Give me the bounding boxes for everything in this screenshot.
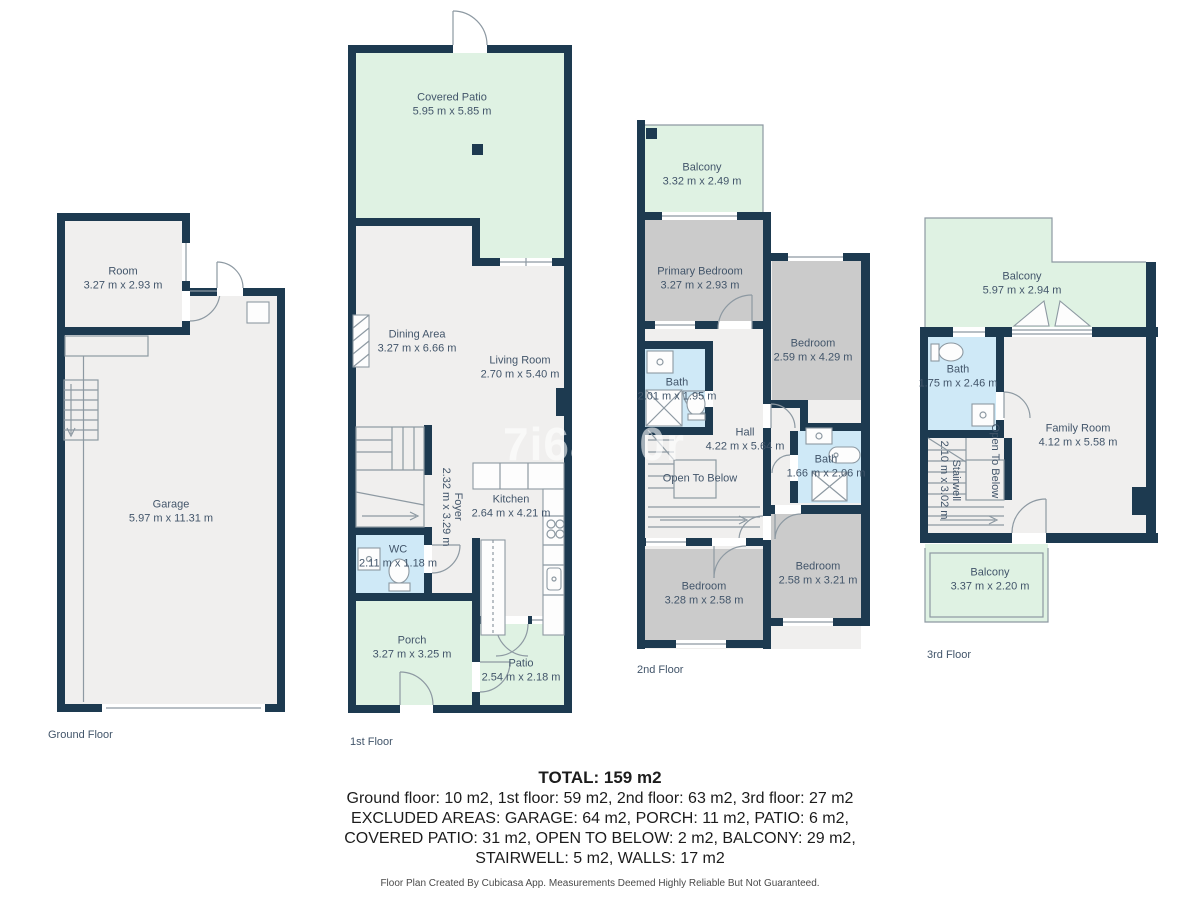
- room-dims: 3.27 m x 2.93 m: [657, 279, 743, 293]
- room-name: Covered Patio: [413, 92, 492, 106]
- room-label-foyer: Foyer 2.32 m x 3.29 m: [440, 468, 464, 547]
- room-name: Stairwell: [950, 441, 962, 520]
- room-label-hall: Hall 4.22 m x 5.64 m: [706, 427, 785, 454]
- room-dims: 5.97 m x 2.94 m: [983, 284, 1062, 298]
- water-heater: [247, 302, 269, 323]
- summary-excluded-3: STAIRWELL: 5 m2, WALLS: 17 m2: [0, 849, 1200, 869]
- room-name: Bedroom: [779, 561, 858, 575]
- room-name: Kitchen: [472, 494, 551, 508]
- room-name: Balcony: [983, 271, 1062, 285]
- room-label-wc: WC 2.11 m x 1.18 m: [359, 544, 437, 571]
- room-name: Bedroom: [665, 581, 744, 595]
- room-dims: 3.32 m x 2.49 m: [663, 175, 742, 189]
- open-to-below-label-2f: Open To Below: [663, 472, 737, 486]
- room-name: Room: [84, 266, 163, 280]
- summary-excluded-2: COVERED PATIO: 31 m2, OPEN TO BELOW: 2 m…: [0, 829, 1200, 849]
- room-label-kitchen: Kitchen 2.64 m x 4.21 m: [472, 494, 551, 521]
- room-label-family-room: Family Room 4.12 m x 5.58 m: [1039, 423, 1118, 450]
- room-label-garage: Garage 5.97 m x 11.31 m: [129, 499, 213, 526]
- room-name: Open To Below: [663, 472, 737, 486]
- room-name: Bath: [919, 364, 998, 378]
- room-dims: 5.95 m x 5.85 m: [413, 105, 492, 119]
- room-dims: 1.66 m x 2.06 m: [787, 467, 866, 481]
- room-dims: 2.11 m x 1.18 m: [359, 557, 437, 571]
- room-name: Bath: [787, 454, 866, 468]
- room-label-balcony-3f-top: Balcony 5.97 m x 2.94 m: [983, 271, 1062, 298]
- room-label-bath-2f-right: Bath 1.66 m x 2.06 m: [787, 454, 866, 481]
- room-dims: 2.64 m x 4.21 m: [472, 507, 551, 521]
- room-dims: 2.70 m x 5.40 m: [481, 368, 560, 382]
- room-label-ground-room: Room 3.27 m x 2.93 m: [84, 266, 163, 293]
- floor-caption-ground: Ground Floor: [48, 729, 113, 741]
- room-dims: 1.75 m x 2.46 m: [919, 377, 998, 391]
- room-dims: 2.54 m x 2.18 m: [482, 671, 561, 685]
- room-label-patio: Patio 2.54 m x 2.18 m: [482, 658, 561, 685]
- floor-caption-first: 1st Floor: [350, 736, 393, 748]
- floor-plan-canvas: Room 3.27 m x 2.93 m Garage 5.97 m x 11.…: [0, 0, 1200, 900]
- room-name: Balcony: [663, 162, 742, 176]
- room-label-porch: Porch 3.27 m x 3.25 m: [373, 635, 452, 662]
- watermark: 7i6af30r: [503, 417, 685, 471]
- floor-caption-second: 2nd Floor: [637, 664, 683, 676]
- room-name: Garage: [129, 499, 213, 513]
- room-label-bedroom-right: Bedroom 2.59 m x 4.29 m: [774, 338, 853, 365]
- room-name: Living Room: [481, 355, 560, 369]
- room-dims: 2.59 m x 4.29 m: [774, 351, 853, 365]
- room-label-covered-patio: Covered Patio 5.95 m x 5.85 m: [413, 92, 492, 119]
- room-dims: 3.27 m x 3.25 m: [373, 648, 452, 662]
- room-name: Open To Below: [989, 424, 1001, 498]
- summary-total: TOTAL: 159 m2: [0, 767, 1200, 789]
- open-to-below-label-3f: Open To Below: [989, 424, 1001, 498]
- room-dims: 3.28 m x 2.58 m: [665, 594, 744, 608]
- room-name: Primary Bedroom: [657, 266, 743, 280]
- room-label-stairwell: Stairwell 2.10 m x 3.02 m: [938, 441, 962, 520]
- dining-hatch: [353, 315, 369, 367]
- room-label-balcony-2f: Balcony 3.32 m x 2.49 m: [663, 162, 742, 189]
- room-dims: 2.01 m x 1.95 m: [638, 390, 717, 404]
- room-dims: 4.22 m x 5.64 m: [706, 440, 785, 454]
- room-dims: 5.97 m x 11.31 m: [129, 512, 213, 526]
- room-label-primary-bedroom: Primary Bedroom 3.27 m x 2.93 m: [657, 266, 743, 293]
- room-dims: 4.12 m x 5.58 m: [1039, 436, 1118, 450]
- room-name: Bath: [638, 377, 717, 391]
- floor-caption-third: 3rd Floor: [927, 649, 971, 661]
- room-name: Bedroom: [774, 338, 853, 352]
- room-name: Family Room: [1039, 423, 1118, 437]
- room-name: Foyer: [452, 468, 464, 547]
- summary-floors: Ground floor: 10 m2, 1st floor: 59 m2, 2…: [0, 789, 1200, 809]
- summary-excluded-1: EXCLUDED AREAS: GARAGE: 64 m2, PORCH: 11…: [0, 809, 1200, 829]
- room-label-dining: Dining Area 3.27 m x 6.66 m: [378, 329, 457, 356]
- room-dims: 2.32 m x 3.29 m: [440, 468, 452, 547]
- room-label-bath-2f-left: Bath 2.01 m x 1.95 m: [638, 377, 717, 404]
- room-dims: 2.10 m x 3.02 m: [938, 441, 950, 520]
- room-dims: 3.37 m x 2.20 m: [951, 580, 1030, 594]
- room-name: Dining Area: [378, 329, 457, 343]
- area-summary: TOTAL: 159 m2 Ground floor: 10 m2, 1st f…: [0, 767, 1200, 889]
- room-dims: 3.27 m x 6.66 m: [378, 342, 457, 356]
- room-name: Porch: [373, 635, 452, 649]
- room-name: Patio: [482, 658, 561, 672]
- room-dims: 3.27 m x 2.93 m: [84, 279, 163, 293]
- room-name: WC: [359, 544, 437, 558]
- room-label-bath-3f: Bath 1.75 m x 2.46 m: [919, 364, 998, 391]
- room-label-balcony-3f-bottom: Balcony 3.37 m x 2.20 m: [951, 567, 1030, 594]
- room-dims: 2.58 m x 3.21 m: [779, 574, 858, 588]
- room-name: Hall: [706, 427, 785, 441]
- room-label-living: Living Room 2.70 m x 5.40 m: [481, 355, 560, 382]
- room-name: Balcony: [951, 567, 1030, 581]
- room-label-bedroom-bl: Bedroom 3.28 m x 2.58 m: [665, 581, 744, 608]
- room-label-bedroom-br: Bedroom 2.58 m x 3.21 m: [779, 561, 858, 588]
- summary-disclaimer: Floor Plan Created By Cubicasa App. Meas…: [0, 878, 1200, 889]
